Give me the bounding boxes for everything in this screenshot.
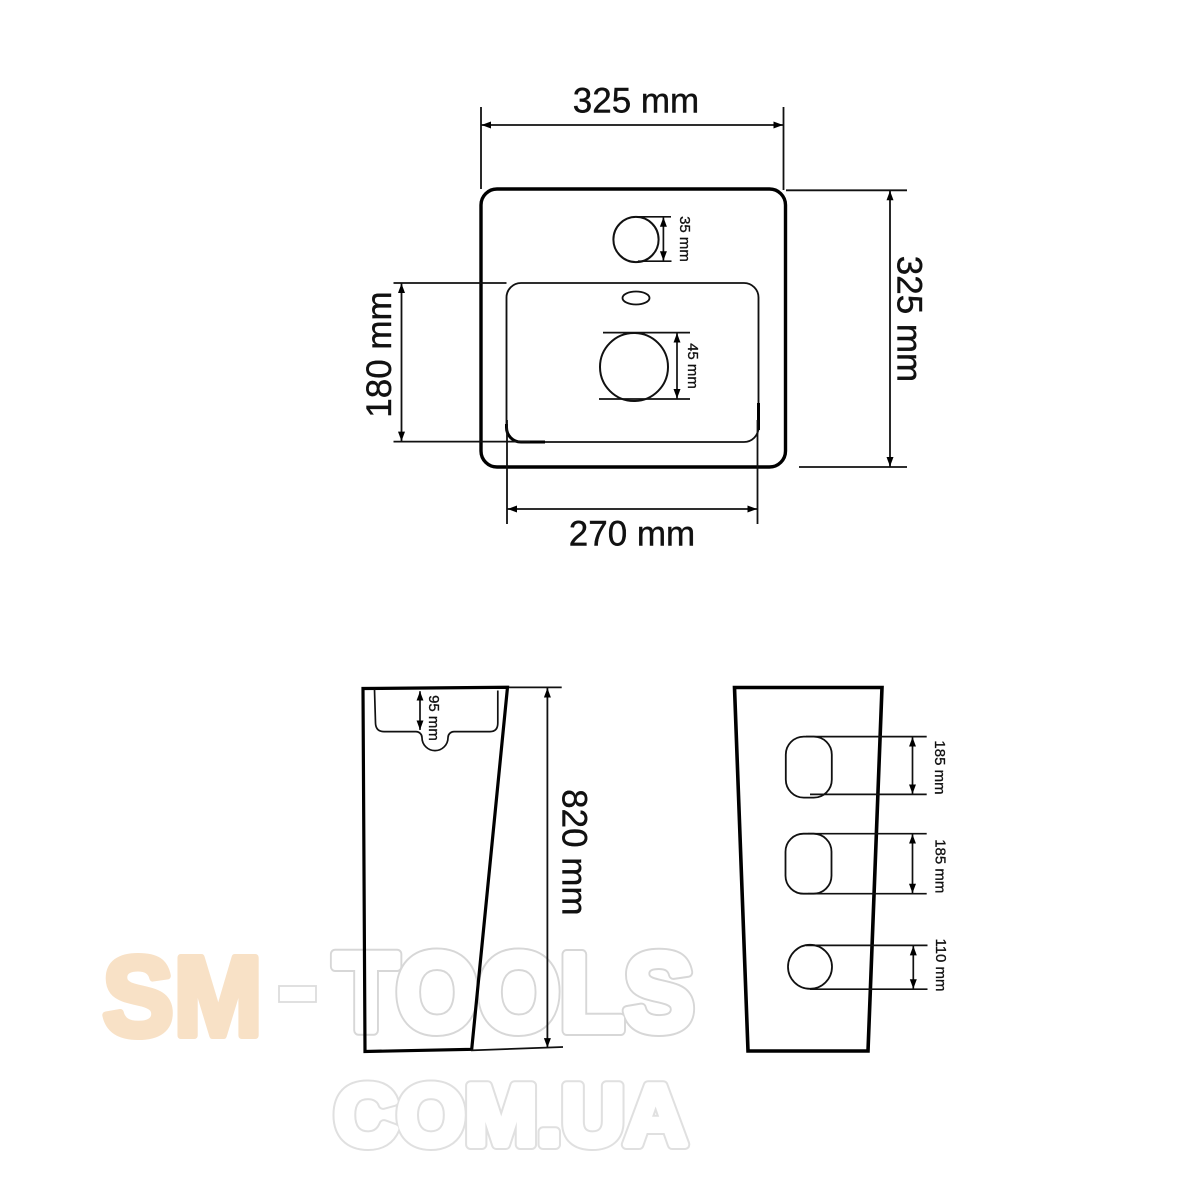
svg-text:325 mm: 325 mm — [573, 82, 699, 121]
svg-text:45 mm: 45 mm — [684, 343, 701, 389]
svg-text:95 mm: 95 mm — [425, 695, 442, 741]
svg-text:TOOLS: TOOLS — [334, 932, 694, 1055]
svg-text:185 mm: 185 mm — [932, 839, 949, 893]
svg-text:35 mm: 35 mm — [676, 216, 693, 262]
svg-text:110 mm: 110 mm — [932, 938, 949, 991]
svg-text:325 mm: 325 mm — [890, 256, 929, 382]
svg-text:820 mm: 820 mm — [554, 789, 593, 915]
svg-text:270 mm: 270 mm — [569, 514, 695, 553]
svg-text:180 mm: 180 mm — [360, 291, 399, 417]
svg-text:SM: SM — [103, 934, 263, 1061]
svg-text:185 mm: 185 mm — [931, 740, 948, 794]
svg-text:COM.UA: COM.UA — [335, 1069, 688, 1164]
